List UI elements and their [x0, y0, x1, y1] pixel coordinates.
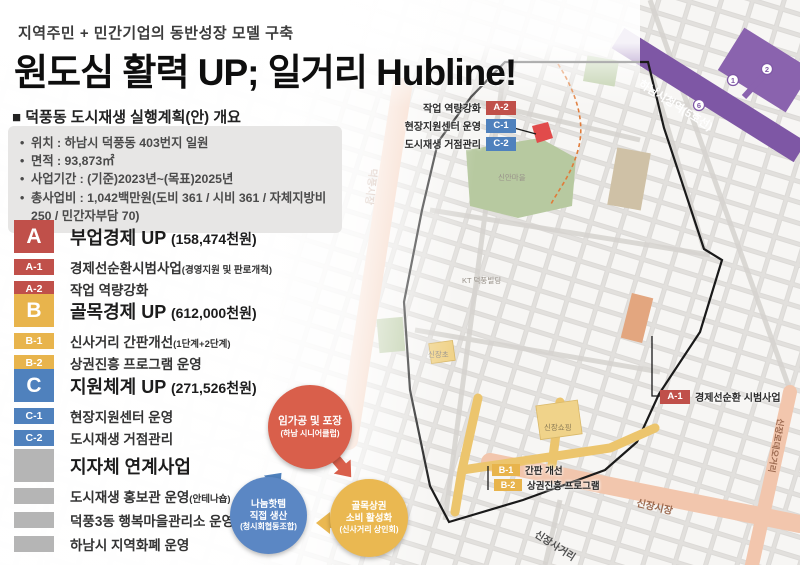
callout-c2-badge: C-2 — [486, 137, 516, 151]
label-c2: 도시재생 거점관리 — [70, 432, 173, 447]
overview-item-location: 위치 : 하남시 덕풍동 403번지 일원 — [20, 134, 332, 152]
linked-label-3: 하남시 지역화폐 운영 — [70, 538, 189, 553]
overview-heading: ■ 덕풍동 도시재생 실행계획(안) 개요 — [12, 106, 241, 127]
linked-badge-1 — [14, 488, 54, 504]
callout-b1-label: 간판 개선 — [525, 463, 563, 477]
cycle-processing-line2: (하남 시니어클럽) — [280, 429, 339, 439]
callout-c2: 도시재생 거점관리 C-2 — [405, 136, 516, 151]
section-b-title: 골목경제 UP (612,000천원) — [70, 298, 257, 324]
callout-c1-label: 현장지원센터 운영 — [405, 118, 481, 133]
cycle-production-line1: 나눔핫템 — [251, 499, 286, 511]
cycle-node-consumption: 골목상권 소비 활성화 (신사거리 상인회) — [330, 479, 408, 557]
label-b1: 신사거리 간판개선 — [70, 335, 173, 350]
note-b1: (1단계+2단계) — [173, 339, 230, 350]
subway-exit-2: 2 — [765, 65, 769, 74]
poi-village: 신안마을 — [498, 172, 526, 182]
poi-kt-building: KT 덕풍빌딩 — [462, 275, 501, 285]
cycle-consumption-line3: (신사거리 상인회) — [339, 525, 398, 535]
callout-b2-label: 상권진흥 프로그램 — [527, 478, 600, 492]
callout-b1-badge: B-1 — [492, 464, 520, 476]
callout-a1: A-1 경제선순환 시범사업 — [660, 389, 781, 404]
callout-b2: B-2 상권진흥 프로그램 — [494, 478, 600, 492]
poi-school: 신장초 — [428, 349, 449, 359]
cycle-consumption-line1: 골목상권 — [352, 501, 387, 513]
page-title: 원도심 활력 UP; 일거리 Hubline! — [14, 42, 516, 96]
section-c-title-text: 지원체계 UP — [70, 377, 166, 397]
section-b: B 골목경제 UP (612,000천원) B-1 신사거리 간판개선(1단계+… — [14, 294, 374, 375]
shopping-building — [536, 400, 582, 440]
badge-c1: C-1 — [14, 408, 54, 424]
callout-c1-badge: C-1 — [486, 119, 516, 133]
callout-a2: 작업 역량강화 A-2 — [423, 100, 516, 115]
callout-c2-label: 도시재생 거점관리 — [405, 136, 481, 151]
badge-a1: A-1 — [14, 259, 54, 275]
callout-a1-badge: A-1 — [660, 390, 690, 404]
poi-shopping: 신장쇼핑 — [544, 422, 572, 432]
badge-c2: C-2 — [14, 430, 54, 446]
cycle-node-production: 나눔핫템 직접 생산 (청시회협동조합) — [230, 477, 307, 554]
section-c-budget: (271,526천원) — [171, 380, 257, 396]
poster-eyebrow: 지역주민 + 민간기업의 동반성장 모델 구축 — [18, 22, 294, 43]
cycle-production-line2: 직접 생산 — [250, 511, 288, 523]
linked-item-1: 도시재생 홍보관 운영(안테나숍) — [14, 486, 374, 506]
linked-note-1: (안테나숍) — [189, 494, 230, 505]
overview-item-area: 면적 : 93,873㎡ — [20, 152, 332, 170]
callout-a1-label: 경제선순환 시범사업 — [695, 389, 781, 404]
linked-item-3: 하남시 지역화폐 운영 — [14, 534, 374, 554]
section-b-title-text: 골목경제 UP — [70, 302, 166, 322]
linked-label-1: 도시재생 홍보관 운영 — [70, 490, 189, 505]
section-b-item-1: B-1 신사거리 간판개선(1단계+2단계) — [14, 331, 374, 351]
section-a-item-1: A-1 경제선순환시범사업(경영지원 및 판로개척) — [14, 257, 374, 277]
cycle-node-processing: 임가공 및 포장 (하남 시니어클럽) — [268, 385, 352, 469]
callout-c1: 현장지원센터 운영 C-1 — [405, 118, 516, 133]
linked-badge-2 — [14, 512, 54, 528]
section-b-badge: B — [14, 294, 54, 327]
overview-item-period: 사업기간 : (기준)2023년~(목표)2025년 — [20, 170, 332, 188]
green-patch — [377, 317, 406, 353]
green-patch-top — [583, 55, 619, 86]
callout-b2-badge: B-2 — [494, 479, 522, 491]
section-a-budget: (158,474천원) — [171, 231, 257, 247]
note-a1: (경영지원 및 판로개척) — [182, 265, 272, 276]
linked-badge — [14, 449, 54, 482]
urban-regeneration-poster: 덕풍시장 신장시장 신장사거리 하남시청역(5호선) 신장로데오거리 신안마을 … — [0, 0, 800, 565]
cycle-consumption-line2: 소비 활성화 — [346, 513, 392, 525]
section-a-title: 부업경제 UP (158,474천원) — [70, 224, 257, 250]
linked-title: 지자체 연계사업 — [70, 453, 191, 479]
overview-box: 위치 : 하남시 덕풍동 403번지 일원 면적 : 93,873㎡ 사업기간 … — [8, 126, 342, 233]
subway-exit-6: 6 — [697, 101, 701, 110]
section-a-title-text: 부업경제 UP — [70, 228, 166, 248]
section-c-title: 지원체계 UP (271,526천원) — [70, 373, 257, 399]
callout-a2-badge: A-2 — [486, 101, 516, 115]
section-a: A 부업경제 UP (158,474천원) A-1 경제선순환시범사업(경영지원… — [14, 220, 374, 301]
callout-b1: B-1 간판 개선 — [492, 463, 563, 477]
section-b-budget: (612,000천원) — [171, 305, 257, 321]
badge-b1: B-1 — [14, 333, 54, 349]
callout-a2-label: 작업 역량강화 — [423, 100, 481, 115]
subway-exit-1: 1 — [731, 76, 735, 85]
section-a-badge: A — [14, 220, 54, 253]
cycle-production-line3: (청시회협동조합) — [240, 522, 297, 532]
linked-label-2: 덕풍3동 행복마을관리소 운영 — [70, 514, 234, 529]
cycle-processing-line1: 임가공 및 포장 — [278, 415, 342, 428]
label-c1: 현장지원센터 운영 — [70, 410, 173, 425]
linked-badge-3 — [14, 536, 54, 552]
section-c-badge: C — [14, 369, 54, 402]
linked-item-2: 덕풍3동 행복마을관리소 운영 — [14, 510, 374, 530]
label-a1: 경제선순환시범사업 — [70, 261, 182, 276]
